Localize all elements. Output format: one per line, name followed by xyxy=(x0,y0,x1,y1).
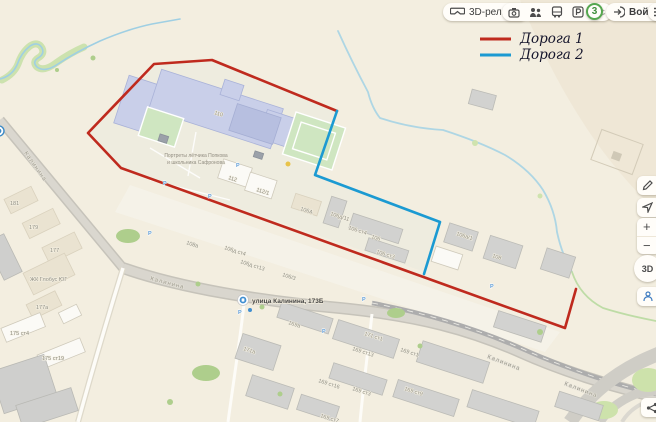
login-arrow-icon xyxy=(613,6,625,18)
ruler-pencil-icon xyxy=(642,180,653,191)
building-number-label: ЖК Глобус ЮГ xyxy=(30,277,67,283)
legend-row-road2: Дорога 2 xyxy=(479,48,584,62)
building-number-label: 106/3 xyxy=(281,272,296,282)
map-canvas[interactable]: КалининаКалининаКалининаКалинина 1101121… xyxy=(0,0,656,422)
ruler-button[interactable] xyxy=(637,176,656,195)
locate-button[interactable] xyxy=(637,198,656,217)
poi-label: Портреты лётчика Попкова и школьника Саф… xyxy=(164,153,228,166)
parking-icon xyxy=(572,6,584,18)
building-number-label: 177 xyxy=(50,248,59,254)
map-app: КалининаКалининаКалининаКалинина 1101121… xyxy=(0,0,656,422)
road1-label: Дорога 1 xyxy=(520,32,584,46)
building-number-label: 175 ст4 xyxy=(10,331,29,337)
crowd-icon xyxy=(529,7,542,18)
parking-mark: Р xyxy=(208,194,212,200)
panorama-camera-icon xyxy=(642,291,654,302)
svg-text:Портреты лётчика Попкова: Портреты лётчика Попкова xyxy=(164,153,228,159)
building-number-label: 106д ст13 xyxy=(239,259,265,273)
edge-stop-icon xyxy=(0,126,4,136)
scooter-marker xyxy=(286,162,291,167)
3d-glasses-icon xyxy=(450,7,465,17)
share-button[interactable] xyxy=(641,398,656,417)
tilt-3d-label: 3D xyxy=(642,264,654,274)
zoom-control: + − xyxy=(637,218,656,254)
building-number-label: 108а xyxy=(185,240,199,250)
parking-mark: Р xyxy=(238,310,242,316)
attractions-camera-icon xyxy=(508,7,520,18)
road-name-label: Калинина xyxy=(486,354,521,372)
zoom-in-button[interactable]: + xyxy=(637,218,656,236)
traffic-button[interactable]: 3 xyxy=(586,3,603,20)
road1-swatch xyxy=(479,36,512,42)
parking-button[interactable] xyxy=(572,6,584,18)
traffic-score: 3 xyxy=(592,6,598,17)
crowd-button[interactable] xyxy=(529,7,542,18)
parking-mark: Р xyxy=(236,163,240,169)
svg-text:улица Калинина, 173Б: улица Калинина, 173Б xyxy=(252,298,324,305)
bus-icon xyxy=(551,6,563,18)
zoom-out-button[interactable]: − xyxy=(637,236,656,255)
legend-row-road1: Дорога 1 xyxy=(479,32,584,46)
parking-mark: Р xyxy=(490,284,494,290)
building-number-label: 169 ст1 xyxy=(399,347,419,359)
panorama-button[interactable] xyxy=(637,287,656,306)
building-number-label: 175 ст19 xyxy=(42,356,64,362)
building-number-label: 181 xyxy=(10,201,19,207)
parking-mark: Р xyxy=(148,231,152,237)
building-number-label: 179 xyxy=(29,225,38,231)
parking-mark: Р xyxy=(163,181,167,187)
route-legend: Дорога 1 Дорога 2 xyxy=(479,32,584,62)
share-icon xyxy=(646,402,656,414)
road2-swatch xyxy=(479,52,512,58)
tilt-3d-dial[interactable]: 3D xyxy=(634,255,656,282)
parking-mark: Р xyxy=(322,329,326,335)
parking-mark: Р xyxy=(362,297,366,303)
road2-label: Дорога 2 xyxy=(520,48,584,62)
navigator-arrow-icon xyxy=(642,202,653,213)
svg-text:и школьника Сафронова: и школьника Сафронова xyxy=(167,160,225,166)
building-number-label: 177а xyxy=(36,305,49,311)
attractions-button[interactable] xyxy=(508,7,520,18)
transport-button[interactable] xyxy=(551,6,563,18)
